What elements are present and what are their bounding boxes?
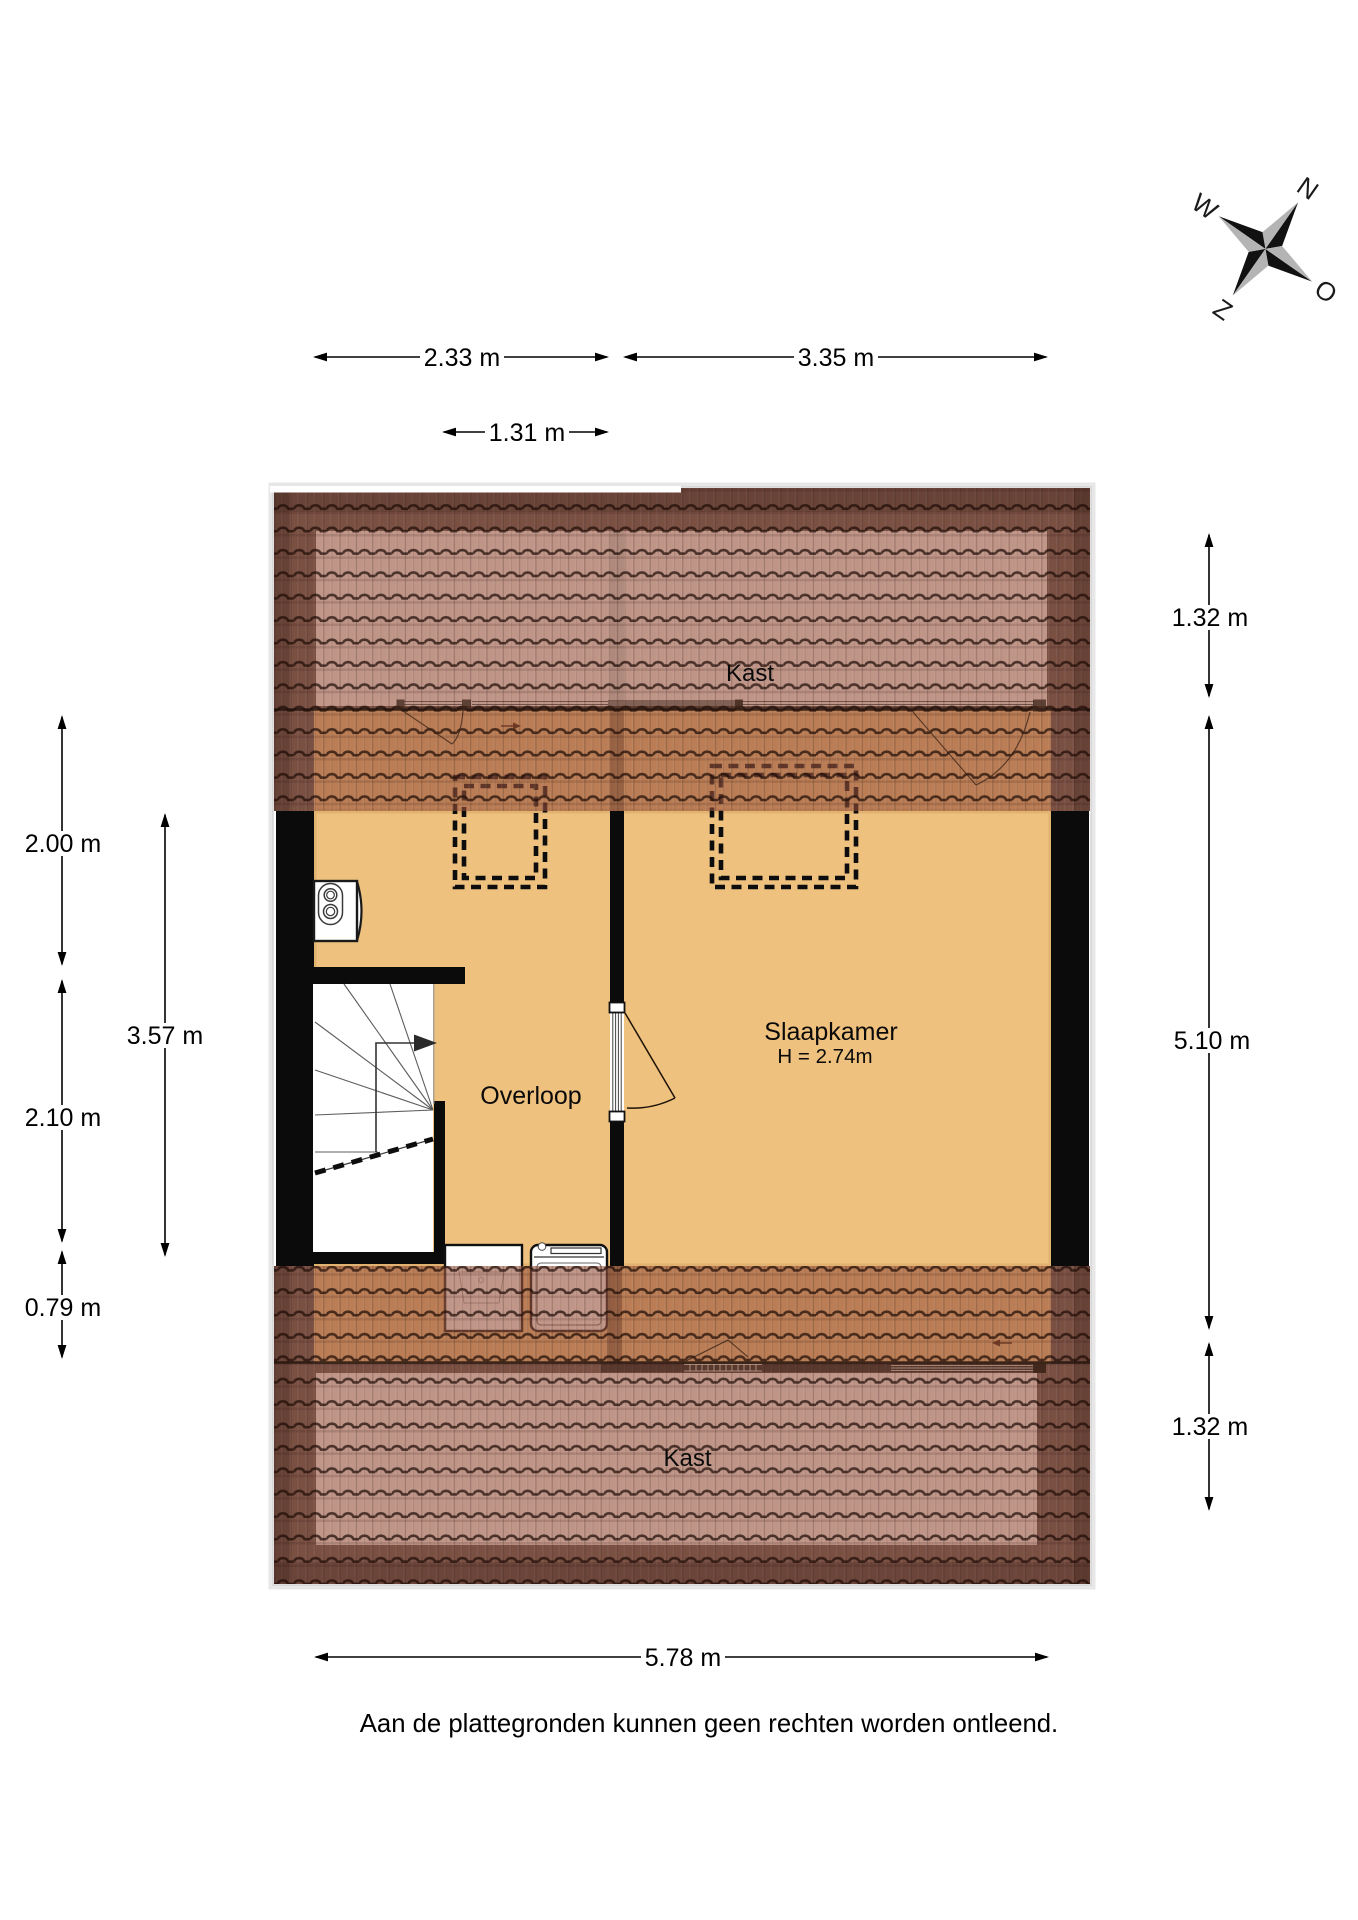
svg-text:5.10 m: 5.10 m [1174,1027,1250,1055]
svg-text:H = 2.74m: H = 2.74m [777,1045,872,1068]
svg-text:2.10 m: 2.10 m [25,1104,101,1132]
svg-text:1.31 m: 1.31 m [489,419,565,447]
svg-text:1.32 m: 1.32 m [1172,604,1248,632]
svg-text:Overloop: Overloop [480,1082,581,1110]
svg-text:5.78 m: 5.78 m [645,1644,721,1672]
svg-text:3.35 m: 3.35 m [798,344,874,372]
svg-text:Slaapkamer: Slaapkamer [764,1018,897,1046]
svg-text:3.57 m: 3.57 m [127,1022,203,1050]
svg-text:Kast: Kast [726,660,774,687]
svg-text:Aan de plattegronden kunnen ge: Aan de plattegronden kunnen geen rechten… [360,1710,1058,1738]
svg-text:Kast: Kast [663,1445,711,1472]
svg-text:1.32 m: 1.32 m [1172,1413,1248,1441]
svg-text:2.00 m: 2.00 m [25,830,101,858]
svg-text:2.33 m: 2.33 m [424,344,500,372]
svg-text:0.79 m: 0.79 m [25,1294,101,1322]
